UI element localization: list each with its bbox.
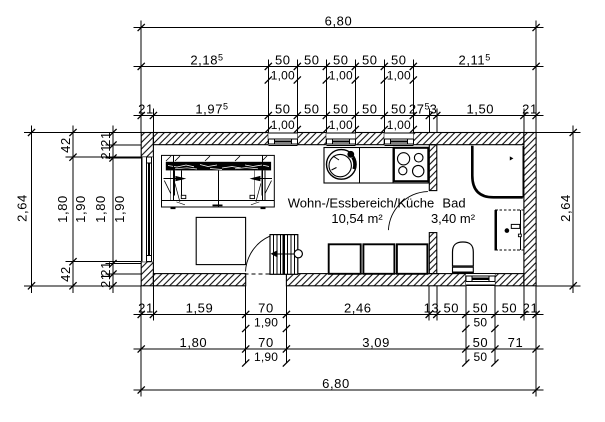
svg-text:50: 50 (275, 53, 291, 68)
svg-text:50: 50 (304, 102, 320, 117)
svg-text:1,90: 1,90 (73, 195, 88, 223)
svg-text:50: 50 (333, 53, 349, 68)
svg-text:3,40 m²: 3,40 m² (431, 211, 476, 226)
svg-text:1,59: 1,59 (186, 301, 214, 316)
svg-text:50: 50 (473, 316, 487, 330)
svg-text:50: 50 (473, 350, 487, 364)
svg-text:1,50: 1,50 (466, 102, 494, 117)
svg-text:50: 50 (304, 53, 320, 68)
svg-text:50: 50 (391, 102, 407, 117)
svg-text:1,00: 1,00 (387, 118, 411, 132)
svg-text:21: 21 (522, 102, 538, 117)
svg-text:Wohn-/Essbereich/Küche: Wohn-/Essbereich/Küche (288, 196, 434, 211)
svg-text:1,00: 1,00 (329, 118, 353, 132)
svg-text:10,54 m²: 10,54 m² (331, 211, 383, 226)
svg-text:6,80: 6,80 (322, 376, 350, 391)
svg-text:50: 50 (275, 102, 291, 117)
svg-text:50: 50 (362, 102, 378, 117)
svg-text:Bad: Bad (442, 196, 465, 211)
svg-text:70: 70 (258, 301, 274, 316)
svg-text:6,80: 6,80 (325, 14, 353, 29)
svg-text:3: 3 (430, 102, 438, 117)
svg-text:50: 50 (473, 335, 489, 350)
svg-text:13: 13 (424, 301, 440, 316)
svg-text:21: 21 (98, 272, 113, 288)
svg-text:42: 42 (58, 266, 73, 282)
svg-text:50: 50 (443, 301, 459, 316)
svg-text:2,46: 2,46 (344, 301, 372, 316)
svg-text:21: 21 (138, 301, 154, 316)
svg-text:1,90: 1,90 (254, 316, 278, 330)
svg-text:21: 21 (523, 301, 539, 316)
svg-text:50: 50 (473, 301, 489, 316)
svg-text:1,00: 1,00 (387, 68, 411, 82)
svg-text:50: 50 (362, 53, 378, 68)
svg-text:2,64: 2,64 (15, 194, 30, 222)
svg-text:21: 21 (98, 144, 113, 160)
svg-text:1,90: 1,90 (112, 195, 127, 223)
svg-text:1,00: 1,00 (271, 68, 295, 82)
svg-text:70: 70 (258, 335, 274, 350)
svg-text:1,00: 1,00 (271, 118, 295, 132)
svg-text:1,00: 1,00 (329, 68, 353, 82)
svg-text:1,90: 1,90 (254, 350, 278, 364)
svg-text:50: 50 (502, 301, 518, 316)
svg-text:50: 50 (391, 53, 407, 68)
svg-text:1,80: 1,80 (55, 195, 70, 223)
svg-text:1,80: 1,80 (180, 335, 208, 350)
svg-text:50: 50 (333, 102, 349, 117)
svg-text:42: 42 (58, 137, 73, 153)
svg-text:21: 21 (138, 102, 154, 117)
svg-text:1,80: 1,80 (93, 195, 108, 223)
svg-text:2,64: 2,64 (558, 194, 573, 222)
svg-text:71: 71 (508, 335, 524, 350)
svg-text:3,09: 3,09 (362, 335, 390, 350)
